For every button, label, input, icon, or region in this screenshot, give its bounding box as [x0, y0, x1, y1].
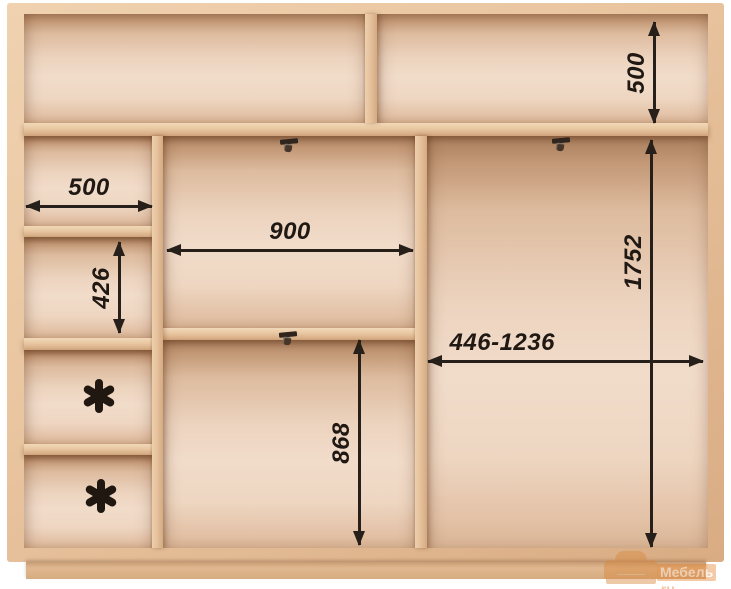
- armchair-icon: [604, 551, 658, 584]
- dimension-label: 426: [88, 267, 116, 309]
- dimension-left-opening-height: 426: [118, 242, 121, 333]
- dimension-left-shelf-width: 500: [26, 205, 152, 208]
- compartment-middle-lower: [163, 340, 415, 548]
- dimension-middle-lower-height: 868: [358, 340, 361, 545]
- compartment-top-left: [24, 14, 365, 123]
- watermark-brand-name: Мебель: [657, 564, 716, 581]
- wardrobe-diagram: 500 500 426 900 868 1752 446-1236 Мебель…: [0, 0, 731, 589]
- watermark-brand-suffix: .ru: [657, 581, 675, 589]
- dimension-right-opening-height: 1752: [650, 140, 653, 547]
- rod-bracket-middle-lower: [279, 331, 297, 346]
- divider-left-column: [152, 136, 163, 548]
- divider-top-section: [365, 14, 377, 123]
- dimension-middle-opening-width: 900: [167, 249, 413, 252]
- dimension-label: 500: [68, 174, 110, 202]
- dimension-label: 500: [623, 52, 651, 94]
- shelf-top-full-width: [24, 123, 708, 136]
- dimension-label: 900: [269, 218, 311, 246]
- rod-bracket-right: [552, 137, 570, 152]
- shelf-left-1: [24, 226, 152, 237]
- shelf-left-2: [24, 338, 152, 350]
- watermark-brand: Мебель.ru: [657, 564, 731, 589]
- dimension-label: 446-1236: [450, 329, 555, 357]
- dimension-top-right-height: 500: [653, 22, 656, 123]
- rod-bracket-middle-upper: [280, 138, 298, 153]
- dimension-label: 1752: [620, 234, 648, 289]
- dimension-label: 868: [328, 422, 356, 464]
- dimension-right-adjustable-width: 446-1236: [428, 360, 703, 363]
- watermark: Мебель.ru: [596, 546, 731, 588]
- asterisk-mark: [82, 379, 116, 413]
- shelf-left-3: [24, 444, 152, 455]
- asterisk-mark: [84, 479, 118, 513]
- divider-right-column: [415, 136, 427, 548]
